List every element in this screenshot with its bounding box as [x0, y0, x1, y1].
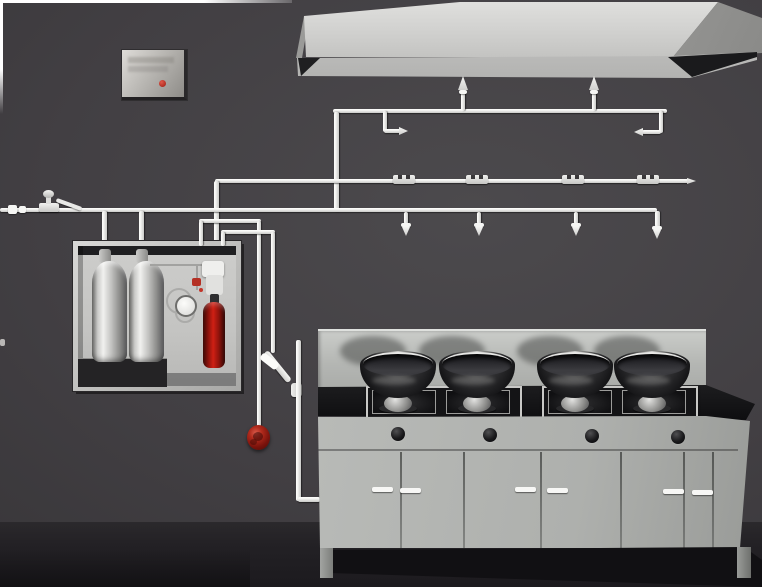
appliance-pipe-run	[0, 208, 657, 212]
release-valve-block	[206, 275, 223, 295]
ball-mottle	[250, 439, 257, 445]
frame-left-tick	[0, 339, 5, 346]
cabinet-step-dark	[78, 358, 167, 387]
front-feed-elbow	[298, 497, 320, 502]
exhaust-hood	[296, 0, 762, 80]
nozzle-collar	[652, 226, 662, 230]
detection-pipe-end	[687, 178, 696, 184]
door-handle	[692, 490, 713, 495]
burner-knob	[483, 428, 497, 442]
release-bridge	[199, 219, 261, 223]
range-leg	[320, 548, 333, 578]
frame-border-left	[0, 2, 3, 114]
door-handle	[400, 488, 421, 493]
range-leg	[737, 547, 751, 578]
wok-highlight	[451, 376, 495, 385]
burner-knob	[585, 429, 599, 443]
wok-highlight	[372, 376, 416, 385]
apron-seam	[318, 449, 738, 451]
hood-pipe-feed-drop	[334, 112, 339, 212]
release-bridge	[221, 230, 275, 234]
appliance-nozzle-down	[475, 227, 483, 236]
burner-knob	[391, 427, 405, 441]
kitchen-suppression-scene	[0, 0, 762, 587]
release-line-drop	[271, 232, 275, 353]
nozzle-collar	[474, 223, 484, 227]
panel-label-area	[128, 57, 174, 63]
cabinet-bottom-shadow	[167, 373, 236, 386]
door-seam	[463, 452, 465, 548]
door-handle	[663, 489, 684, 494]
appliance-nozzle-down	[653, 230, 661, 239]
fusible-link-bracket	[466, 175, 488, 184]
agent-cartridge	[203, 302, 225, 368]
nozzle-collar	[590, 90, 598, 94]
panel-label-area	[128, 66, 168, 72]
agent-cylinder	[129, 261, 164, 362]
nozzle-collar	[459, 90, 467, 94]
door-seam	[540, 452, 542, 548]
appliance-nozzle-down	[572, 227, 580, 236]
release-bridge-leg	[221, 232, 225, 246]
duct-nozzle-right	[399, 127, 408, 135]
wok-highlight	[549, 376, 593, 385]
door-handle	[547, 488, 568, 493]
burner-knob	[671, 430, 685, 444]
agent-cylinder	[92, 261, 127, 362]
frame-border-top	[0, 0, 292, 3]
duct-nozzle-arm	[642, 130, 661, 134]
pressure-gauge	[175, 295, 197, 317]
door-seam	[620, 452, 622, 548]
door-seam	[400, 452, 402, 548]
front-feed-drop	[296, 340, 301, 501]
duct-nozzle-left	[634, 128, 643, 136]
appliance-nozzle-down	[402, 227, 410, 236]
wok-highlight	[626, 376, 670, 385]
valve-red-dot	[199, 288, 203, 292]
detection-pipe-run	[215, 179, 689, 183]
floor-corner-shadow	[0, 548, 250, 587]
pipe-union	[8, 205, 17, 214]
duct-nozzle-arm	[384, 129, 401, 133]
wok-rim	[442, 352, 512, 376]
shutoff-valve-body	[39, 203, 59, 212]
door-seam	[712, 452, 714, 548]
pull-station-ball	[247, 425, 270, 450]
wok-rim	[617, 352, 687, 376]
nozzle-collar	[571, 223, 581, 227]
fusible-link-bracket	[637, 175, 659, 184]
pull-line-drop	[257, 221, 261, 427]
range-front	[318, 414, 754, 550]
door-handle	[515, 487, 536, 492]
valve-red-fitting	[192, 278, 201, 286]
panel-indicator-light	[159, 80, 166, 87]
appliance-pipe-end-drop	[655, 211, 660, 227]
fusible-link-bracket	[562, 175, 584, 184]
nozzle-collar	[401, 223, 411, 227]
valve-knob	[43, 190, 54, 198]
release-bridge-leg	[199, 221, 203, 246]
wok-rim	[363, 352, 433, 376]
fusible-link-bracket	[393, 175, 415, 184]
alarm-control-panel	[122, 50, 187, 100]
door-seam	[683, 452, 685, 548]
wok-rim	[540, 352, 610, 376]
door-handle	[372, 487, 393, 492]
pipe-union	[19, 206, 26, 213]
